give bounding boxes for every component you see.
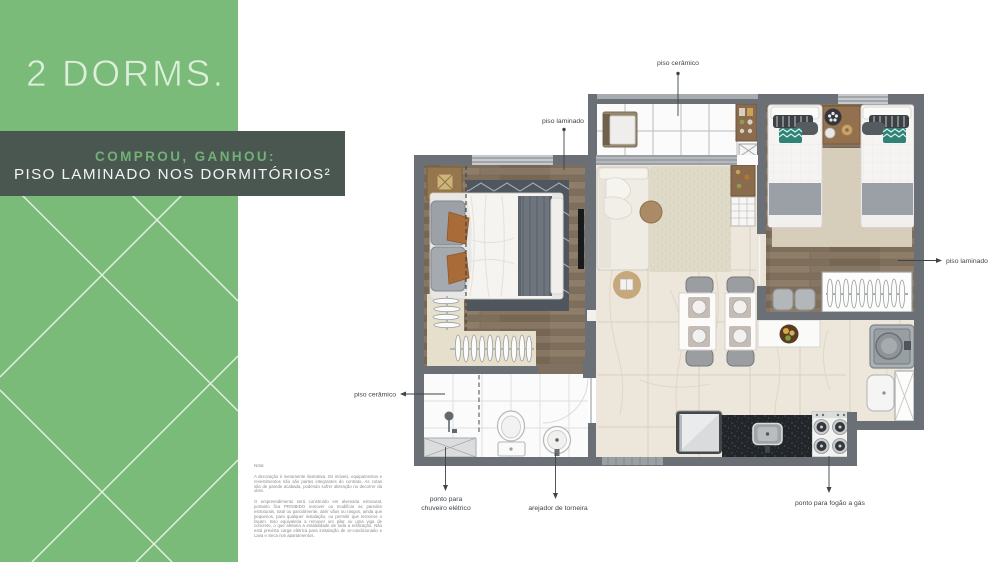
svg-text:piso cerâmico: piso cerâmico [354, 392, 396, 399]
svg-text:chuveiro elétrico: chuveiro elétrico [421, 505, 471, 512]
svg-text:piso laminado: piso laminado [946, 258, 988, 265]
svg-text:ponto para: ponto para [430, 496, 463, 503]
svg-text:piso laminado: piso laminado [542, 118, 584, 125]
svg-text:arejador de torneira: arejador de torneira [528, 505, 588, 512]
svg-text:piso cerâmico: piso cerâmico [657, 60, 699, 67]
svg-text:ponto para fogão a gás: ponto para fogão a gás [795, 500, 866, 507]
